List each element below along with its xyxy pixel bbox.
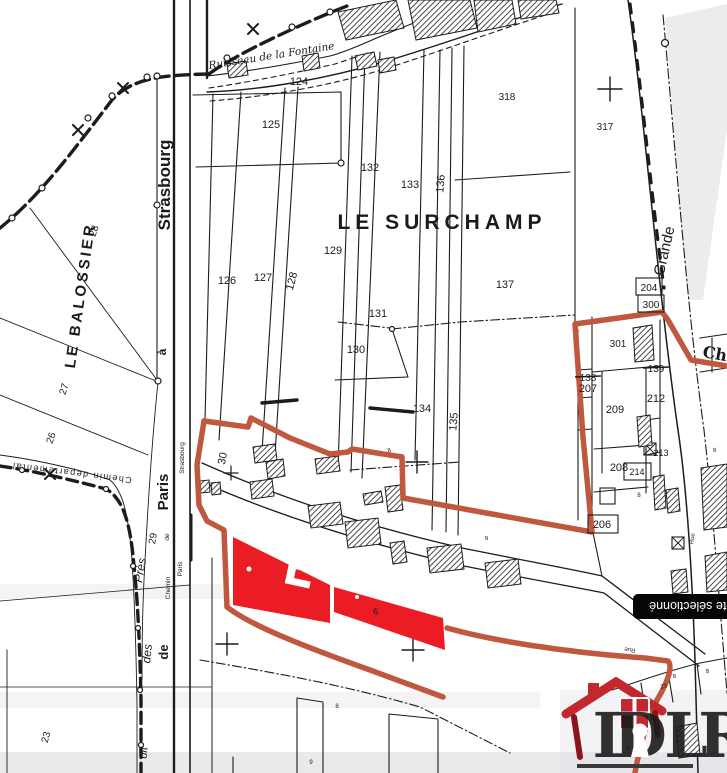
street-label-pr-s: Près <box>131 557 149 584</box>
strikethrough-mark <box>643 367 669 368</box>
parcel-number-213: 213 <box>653 448 668 458</box>
logo-letters: IDLR <box>592 699 727 772</box>
house-number-8: 8 <box>713 448 718 455</box>
parcel-number-318: 318 <box>499 92 516 103</box>
parcel-number-27: 27 <box>58 382 72 396</box>
parcel-mark-dot-2 <box>355 595 359 599</box>
house-number-8: 8 <box>637 493 641 499</box>
parcel-mark-dot <box>247 567 252 572</box>
parcel-number-212: 212 <box>647 393 665 405</box>
house-number-9: 9 <box>484 536 489 543</box>
street-label-paris: Paris <box>155 474 172 511</box>
selected-parcel-2[interactable] <box>334 587 445 650</box>
parcel-number-137: 137 <box>496 279 514 291</box>
parcel-number-139: 139 <box>648 364 665 375</box>
area-label-le-balossier: LE BALOSSIER <box>62 221 99 369</box>
parcel-number-134: 134 <box>413 403 431 415</box>
cadastral-map-scan: 6 LE SURCHAMPLE BALOSSIERStrasbourgàPari… <box>0 0 727 773</box>
parcel-number-207: 207 <box>579 383 597 395</box>
house-number-8: 8 <box>387 447 393 454</box>
survey-markers <box>9 9 669 748</box>
parcel-number-29: 29 <box>147 532 160 545</box>
map-canvas: 6 LE SURCHAMPLE BALOSSIERStrasbourgàPari… <box>0 0 727 773</box>
parcel-number-135: 135 <box>447 412 461 431</box>
parcel-number-133: 133 <box>401 179 419 191</box>
logo-letter-r: R <box>698 699 727 772</box>
parcel-number-130: 130 <box>347 344 365 356</box>
parcel-number-125: 125 <box>262 119 280 131</box>
parcel-number-204: 204 <box>641 283 658 294</box>
parcel-number-126: 126 <box>218 275 236 287</box>
strikethrough-mark <box>575 376 601 377</box>
area-label-le-surchamp: LE SURCHAMP <box>337 211 546 234</box>
street-label-rue: Rue <box>689 532 697 545</box>
parcel-number-129: 129 <box>324 245 342 257</box>
parcel-number-136: 136 <box>434 174 448 193</box>
street-label-de: de <box>164 533 171 541</box>
street-label-de: de <box>156 644 171 659</box>
street-label-paris: Paris <box>177 561 184 577</box>
street-label-strasbourg: Strasbourg <box>155 140 174 231</box>
selected-text-tooltip: texte sélectionné <box>633 594 727 619</box>
parcel-number-30: 30 <box>216 451 230 465</box>
street-label-strasbourg: Strasbourg <box>179 442 186 474</box>
parcel-number-300: 300 <box>643 300 660 311</box>
parcel-number-132: 132 <box>361 162 379 174</box>
parcel-number-208: 208 <box>610 462 628 474</box>
house-number-8: 8 <box>672 674 677 681</box>
parcel-number-214: 214 <box>629 467 644 477</box>
street-label-des: des <box>139 643 155 664</box>
parcel-number-209: 209 <box>606 404 624 416</box>
parcel-number-131: 131 <box>369 308 387 320</box>
parcel-number-124: 124 <box>290 76 308 88</box>
parcel-number-23: 23 <box>40 730 54 744</box>
parcel-number-206: 206 <box>593 519 611 531</box>
parcel-number-127: 127 <box>254 272 272 284</box>
logo-underline <box>577 764 693 768</box>
parcel-number-26: 26 <box>45 431 59 446</box>
parcel-number-28: 28 <box>88 224 102 239</box>
street-label-dit: dit <box>138 745 151 759</box>
parcel-number-317: 317 <box>597 122 614 133</box>
street-label--: à <box>155 348 169 355</box>
house-number-8: 8 <box>705 669 710 676</box>
parcel-number-301: 301 <box>610 339 627 350</box>
street-label-chemin: Chemin <box>165 576 172 599</box>
selected-parcel-1[interactable] <box>233 537 330 623</box>
street-label-rue: Rue <box>623 645 635 652</box>
